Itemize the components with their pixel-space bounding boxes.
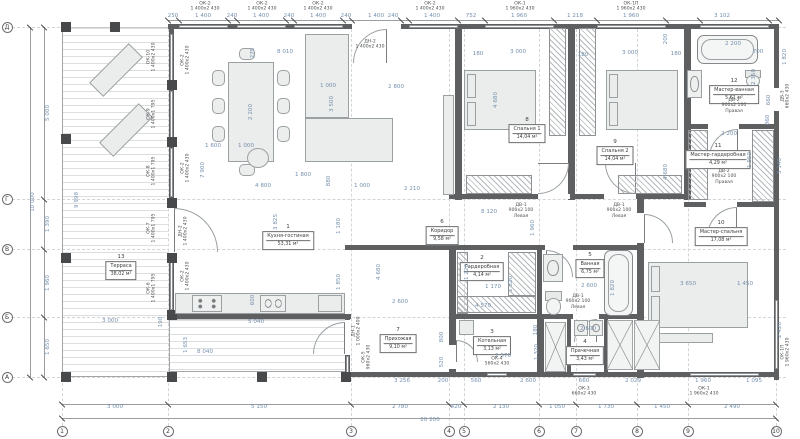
- bathtub: [604, 250, 633, 316]
- dim-label: 200: [438, 379, 449, 385]
- dim-label: 3 825: [274, 214, 280, 230]
- grid-bubble-row-В: В: [2, 244, 13, 255]
- dim-label: 1 653: [184, 337, 190, 353]
- dim-label: 3 000: [107, 405, 123, 411]
- kitchen-sink: [260, 295, 286, 312]
- dim-label: 2 029: [625, 379, 641, 385]
- dim-label: 250: [168, 14, 179, 20]
- room-area: 9,10 м²: [384, 344, 413, 351]
- opening-tag-line: 900х2 100: [566, 299, 591, 304]
- dim-label: 1 050: [549, 405, 565, 411]
- dim-label: 2 780: [392, 405, 408, 411]
- room-name: Прачечная: [570, 348, 600, 356]
- dim-label: 2 800: [388, 85, 404, 91]
- dim-label: 1 095: [746, 379, 762, 385]
- room-label-1: 1Кухня-гостиная53,31 м²: [262, 224, 314, 250]
- dim-label: 1 960: [46, 275, 52, 291]
- room-box: Кухня-гостиная53,31 м²: [262, 231, 314, 250]
- wardrobe-hatch: [618, 175, 682, 194]
- dim-label: 4 570: [475, 304, 491, 310]
- opening-tag: ОК-11 960х2 430: [689, 387, 718, 398]
- dim-label: 1 600: [205, 144, 221, 150]
- opening-tag: ОК-5960х2 430: [362, 345, 373, 370]
- dim-label: 240: [341, 14, 352, 20]
- dim-label: 1 650: [46, 339, 52, 355]
- grid-bubble-col-9: 9: [683, 426, 694, 437]
- opening-tag-line: 1 400х2 430: [355, 45, 384, 50]
- grid-bubble-row-Г: Г: [2, 194, 13, 205]
- dim-label: 3 500: [330, 96, 336, 112]
- opening-tag-line: 660х2 430: [786, 84, 791, 109]
- opening-tag: ОК-21 400х2 430: [247, 2, 276, 13]
- room-area: 14,04 м²: [600, 156, 629, 163]
- opening-tag-line: 900х2 100: [712, 174, 737, 179]
- room-box: Мастер-спальня17,08 м²: [695, 227, 748, 246]
- dim-label: 8 010: [277, 50, 293, 56]
- dim-label: 660: [579, 379, 590, 385]
- dim-label: 752: [466, 14, 477, 20]
- opening-tag-line: 1 960х2 430: [505, 7, 534, 12]
- opening-tag-line: 1 400х1 795: [152, 99, 157, 128]
- room-label-3: 3Котельная3,13 м²: [473, 329, 511, 355]
- room-box: Спальня 214,04 м²: [596, 146, 633, 165]
- opening-tag: ОК-21 400х2 430: [181, 261, 192, 290]
- opening-tag: ОК-71 400х1 795: [147, 213, 158, 242]
- grid-bubble-row-Б: Б: [2, 312, 13, 323]
- dim-label: 1 800: [295, 173, 311, 179]
- wardrobe-hatch: [457, 296, 536, 313]
- grid-line-col-7: [576, 24, 577, 426]
- chair: [277, 70, 290, 86]
- dim-label: 1 180: [337, 218, 343, 234]
- dim-label: 180: [473, 52, 484, 58]
- opening-tag-line: 1 400х2 430: [415, 7, 444, 12]
- opening-tag-line: 900х2 100: [722, 103, 747, 108]
- dim-label: 3 102: [714, 14, 730, 20]
- dim-label: 560: [471, 379, 482, 385]
- shaft-crossed-box: [634, 320, 660, 370]
- room-number: 13: [105, 254, 136, 260]
- dim-label: 1 730: [598, 405, 614, 411]
- opening-tag: ДН-21 400х2 430: [355, 40, 384, 51]
- opening-tag-line: 1 400х2 430: [247, 7, 276, 12]
- dim-label: 2 200: [249, 104, 255, 120]
- grid-bubble-col-1: 1: [57, 426, 68, 437]
- dim-label: 3 000: [622, 51, 638, 57]
- dim-label: 1 400: [424, 14, 440, 20]
- dim-label: 520: [440, 357, 446, 368]
- dim-label: 1 820: [509, 276, 515, 292]
- opening-tag-line: 960х2 430: [367, 345, 372, 370]
- room-number: 10: [695, 220, 748, 226]
- opening-tag: ОК-61 400х1 795: [147, 273, 158, 302]
- stove: [192, 295, 222, 312]
- dim-label: 1 400: [310, 14, 326, 20]
- dim-label: 1 950: [748, 152, 754, 168]
- dim-label: 1 820: [611, 280, 617, 296]
- room-box: Ванная6,75 м²: [575, 259, 604, 278]
- dim-label: 1 000: [354, 184, 370, 190]
- room-area: 9,58 м²: [430, 236, 455, 243]
- room-name: Спальня 2: [600, 148, 629, 156]
- room-area: 53,31 м²: [266, 241, 310, 248]
- washbasin: [543, 254, 563, 282]
- column-post: [61, 134, 71, 144]
- dim-label: 200: [664, 34, 670, 45]
- dim-label: 1 320: [535, 344, 541, 360]
- grid-bubble-col-5: 5: [459, 426, 470, 437]
- opening-tag-line: 1 400х1 795: [152, 213, 157, 242]
- dim-label: 600: [251, 295, 257, 306]
- opening-tag-line: 1 400х1 795: [152, 156, 157, 185]
- opening-tag: ОК-81 400х1 795: [147, 156, 158, 185]
- opening-tag-line: Левая: [607, 214, 632, 219]
- wardrobe-hatch: [466, 175, 532, 194]
- dim-label: 660: [767, 95, 773, 106]
- room-area: 6,75 м²: [579, 269, 600, 276]
- room-label-9: 9Спальня 214,04 м²: [596, 139, 633, 165]
- dim-label: 1 850: [337, 274, 343, 290]
- dim-label: 3 000: [510, 50, 526, 56]
- room-number: 4: [566, 339, 604, 345]
- dim-label: 1 450: [737, 282, 753, 288]
- dim-label: 3 140: [778, 158, 784, 174]
- dim-label: 190: [159, 317, 165, 328]
- wall: [345, 245, 545, 250]
- dim-label: 1 000: [320, 84, 336, 90]
- opening-tag: ДВ-1900х2 100Левая: [607, 203, 632, 219]
- dim-label: 2 200: [725, 42, 741, 48]
- column-post: [61, 253, 71, 263]
- wardrobe-hatch: [579, 28, 596, 136]
- opening-tag: ОК-21 400х2 430: [181, 45, 192, 74]
- opening-tag: ОК-11 960х2 430: [505, 2, 534, 13]
- column-post: [167, 137, 177, 147]
- window: [690, 373, 759, 376]
- room-number: 11: [685, 143, 750, 149]
- window: [179, 25, 228, 28]
- dim-label: 4 680: [494, 92, 500, 108]
- dim-label: 180: [578, 53, 589, 59]
- column-post: [167, 372, 177, 382]
- room-box: Прихожая9,10 м²: [380, 334, 417, 353]
- pillow: [467, 74, 476, 98]
- dim-label: 1 390: [46, 216, 52, 232]
- door-swing-arc: [538, 163, 569, 194]
- room-label-7: 7Прихожая9,10 м²: [380, 327, 417, 353]
- room-number: 2: [460, 255, 504, 261]
- sofa: [305, 34, 349, 118]
- room-name: Ванная: [579, 261, 600, 269]
- room-label-4: 4Прачечная3,43 м²: [566, 339, 604, 365]
- bathtub: [697, 35, 758, 64]
- dim-label: 2 600: [392, 300, 408, 306]
- shaft-crossed-box: [545, 322, 566, 372]
- opening-tag: ДН-21 400х2 430: [179, 216, 190, 245]
- opening-tag-line: Левая: [566, 305, 591, 310]
- room-label-11: 11Мастер-гардеробная4,29 м²: [685, 143, 750, 169]
- dim-label: 20 200: [420, 418, 440, 424]
- opening-tag: ОК-21 400х2 430: [303, 2, 332, 13]
- opening-tag-line: 1 400х1 795: [152, 273, 157, 302]
- door-opening: [449, 345, 456, 369]
- door-opening: [352, 24, 401, 29]
- wardrobe-hatch: [549, 28, 566, 136]
- opening-tag-line: Левая: [509, 214, 534, 219]
- window: [573, 373, 596, 376]
- grid-bubble-col-3: 3: [346, 426, 357, 437]
- room-label-5: 5Ванная6,75 м²: [575, 252, 604, 278]
- room-area: 38,02 м²: [109, 271, 132, 278]
- dim-label: 1 820: [783, 49, 789, 65]
- dim-label: 2 490: [724, 405, 740, 411]
- room-number: 1: [262, 224, 314, 230]
- grid-bubble-row-А: А: [2, 372, 13, 383]
- room-box: Котельная3,13 м²: [473, 336, 511, 355]
- room-area: 3,13 м²: [477, 346, 507, 353]
- floor-plan-canvas: 12345678910ДГВБА1Кухня-гостиная53,31 м²2…: [0, 0, 800, 439]
- boiler: [459, 320, 474, 335]
- toilet: [544, 291, 561, 313]
- dim-label: 1 960: [623, 14, 639, 20]
- opening-tag: ДВ-1900х2 100Левая: [509, 203, 534, 219]
- opening-tag-line: 660х2 430: [572, 392, 597, 397]
- room-number: 8: [508, 117, 545, 123]
- dim-label: 180: [534, 325, 540, 336]
- dim-label: 1 400: [253, 14, 269, 20]
- dim-label: 9 998: [75, 192, 81, 208]
- column-post: [61, 372, 71, 382]
- room-number: 3: [473, 329, 511, 335]
- opening-tag: ДВ-3660х2 430: [781, 84, 792, 109]
- bed: [648, 262, 748, 328]
- opening-tag: ДВ-1900х2 100Левая: [566, 294, 591, 310]
- dim-label: 1 170: [485, 285, 501, 291]
- chair: [212, 70, 225, 86]
- dim-label: 4 800: [255, 184, 271, 190]
- chair: [277, 98, 290, 114]
- opening-tag-line: Правая: [712, 180, 737, 185]
- dim-label: 800: [440, 332, 446, 343]
- room-box: Коридор9,58 м²: [426, 226, 459, 245]
- window: [170, 261, 173, 310]
- opening-tag: ДН-11 000х2 400: [352, 316, 363, 345]
- pillow: [651, 296, 660, 322]
- opening-tag-line: 1 400х2 430: [186, 45, 191, 74]
- opening-tag-line: 900х2 100: [509, 208, 534, 213]
- grid-bubble-col-2: 2: [163, 426, 174, 437]
- wall: [568, 24, 575, 200]
- opening-tag-line: 900х2 100: [607, 208, 632, 213]
- grid-bubble-col-10: 10: [771, 426, 782, 437]
- fridge: [318, 295, 342, 312]
- room-number: 5: [575, 252, 604, 258]
- opening-tag: ОК-1П1 960х2 430: [616, 2, 645, 13]
- opening-tag-line: 1 400х2 430: [186, 153, 191, 182]
- dim-label: 1 000: [238, 144, 254, 150]
- door-opening: [637, 213, 644, 243]
- opening-tag: ОК-21 400х2 430: [415, 2, 444, 13]
- dim-label: 2 600: [580, 327, 596, 333]
- opening-tag-line: 1 400х2 430: [152, 42, 157, 71]
- dim-label: 8 120: [481, 210, 497, 216]
- dim-label: 1 960: [531, 220, 537, 236]
- dimension-chain-line: [62, 418, 776, 419]
- window: [170, 148, 173, 197]
- dim-label: 4 680: [664, 164, 670, 180]
- grid-bubble-col-4: 4: [444, 426, 455, 437]
- room-area: 14,04 м²: [512, 134, 541, 141]
- pillow: [609, 102, 618, 126]
- door-swing-arc: [644, 214, 673, 243]
- window: [597, 25, 666, 28]
- dim-label: 1 450: [654, 405, 670, 411]
- dim-label: 2 600: [520, 379, 536, 385]
- dim-label: 2 210: [404, 187, 420, 193]
- opening-tag-line: 560х2 430: [485, 362, 510, 367]
- room-name: Котельная: [477, 338, 507, 346]
- room-name: Терраса: [109, 263, 132, 271]
- opening-tag: ОК-101 400х2 430: [147, 42, 158, 71]
- dim-label: 2 350: [752, 69, 758, 85]
- window: [487, 373, 507, 376]
- room-name: Спальня 1: [512, 126, 541, 134]
- room-name: Мастер-ванная: [713, 87, 755, 95]
- dim-label: 4 680: [377, 264, 383, 280]
- wall: [573, 245, 641, 250]
- dim-label: 1 220: [465, 264, 471, 280]
- grid-bubble-row-Д: Д: [2, 22, 13, 33]
- dim-label: 1 218: [567, 14, 583, 20]
- dim-label: 275: [251, 48, 257, 59]
- column-post: [341, 372, 351, 382]
- room-number: 9: [596, 139, 633, 145]
- dim-label: 3 000: [102, 319, 118, 325]
- dimension-chain-line: [168, 20, 779, 21]
- door-opening: [774, 88, 779, 111]
- opening-tag: ДВ-2900х2 100Правая: [712, 169, 737, 185]
- pillow: [651, 266, 660, 292]
- column-post: [110, 22, 120, 32]
- room-area: 4,29 м²: [689, 160, 746, 167]
- window: [170, 91, 173, 140]
- sofa-chaise: [305, 118, 393, 162]
- opening-tag: ОК-91 400х1 795: [147, 99, 158, 128]
- dim-label: 2 420: [778, 322, 784, 338]
- chair: [212, 126, 225, 142]
- opening-tag: ДВ-2900х2 100Правая: [722, 98, 747, 114]
- room-number: 7: [380, 327, 417, 333]
- dim-label: 3 650: [680, 282, 696, 288]
- door-opening: [538, 194, 570, 199]
- window: [409, 25, 458, 28]
- column-post: [257, 372, 267, 382]
- window: [170, 34, 173, 83]
- grid-bubble-col-7: 7: [571, 426, 582, 437]
- dim-label: 3 256: [394, 379, 410, 385]
- window: [346, 356, 349, 373]
- dim-label: 180: [671, 52, 682, 58]
- opening-tag-line: 1 400х2 430: [184, 216, 189, 245]
- dim-label: 700: [753, 50, 764, 56]
- window: [294, 25, 343, 28]
- room-name: Мастер-гардеробная: [689, 152, 746, 160]
- window: [700, 25, 769, 28]
- opening-tag-line: 1 400х2 430: [303, 7, 332, 12]
- door-opening: [345, 320, 350, 355]
- shaft-crossed-box: [607, 320, 633, 370]
- opening-tag: ОК-21 400х2 430: [190, 2, 219, 13]
- dim-label: 420: [451, 405, 462, 411]
- opening-tag: ОК-21 400х2 430: [181, 153, 192, 182]
- window: [485, 25, 554, 28]
- room-label-13: 13Терраса38,02 м²: [105, 254, 136, 280]
- wardrobe-hatch: [752, 130, 774, 202]
- opening-tag-line: 1 000х2 400: [357, 316, 362, 345]
- dim-label: 1 960: [511, 14, 527, 20]
- window: [237, 25, 286, 28]
- room-label-6: 6Коридор9,58 м²: [426, 219, 459, 245]
- opening-tag-line: Правая: [722, 109, 747, 114]
- chair: [277, 126, 290, 142]
- room-box: Терраса38,02 м²: [105, 261, 136, 280]
- washbasin: [687, 70, 702, 98]
- opening-tag-line: 1 960х2 430: [616, 7, 645, 12]
- room-name: Прихожая: [384, 336, 413, 344]
- opening-tag: ОК-4560х2 430: [485, 357, 510, 368]
- opening-tag: ОК-1П1 960х2 430: [781, 337, 792, 366]
- column-post: [167, 253, 177, 263]
- room-area: 3,43 м²: [570, 356, 600, 363]
- coffee-table: [247, 148, 269, 168]
- dim-label: 860: [766, 115, 772, 126]
- room-name: Кухня-гостиная: [266, 233, 310, 241]
- column-post: [167, 198, 177, 208]
- tv-cabinet: [443, 95, 454, 195]
- pillow: [609, 74, 618, 98]
- dim-label: 2 200: [721, 132, 737, 138]
- room-name: Коридор: [430, 228, 455, 236]
- dim-label: 1 960: [695, 379, 711, 385]
- dim-label: 2 130: [493, 405, 509, 411]
- wall: [449, 249, 456, 317]
- dim-label: 7 900: [201, 162, 207, 178]
- door-opening: [604, 194, 636, 199]
- dim-label: 5 040: [248, 320, 264, 326]
- column-post: [167, 80, 177, 90]
- dim-label: 5 000: [46, 105, 52, 121]
- dim-label: 5 150: [251, 405, 267, 411]
- dim-label: 1 400: [195, 14, 211, 20]
- room-label-8: 8Спальня 114,04 м²: [508, 117, 545, 143]
- room-area: 17,08 м²: [699, 237, 744, 244]
- wall: [455, 24, 462, 200]
- grid-line-col-3: [351, 24, 352, 426]
- dim-label: 2 600: [581, 284, 597, 290]
- pillow: [467, 102, 476, 126]
- grid-bubble-col-8: 8: [632, 426, 643, 437]
- dim-label: 240: [284, 14, 295, 20]
- opening-tag-line: 1 400х2 430: [186, 261, 191, 290]
- dim-label: 880: [327, 176, 333, 187]
- dim-label: 10 000: [31, 192, 37, 212]
- chair: [212, 98, 225, 114]
- room-number: 6: [426, 219, 459, 225]
- room-box: Мастер-гардеробная4,29 м²: [685, 150, 750, 169]
- opening-tag-line: 1 960х2 430: [786, 337, 791, 366]
- bench: [658, 333, 713, 343]
- opening-tag-line: 1 960х2 430: [689, 392, 718, 397]
